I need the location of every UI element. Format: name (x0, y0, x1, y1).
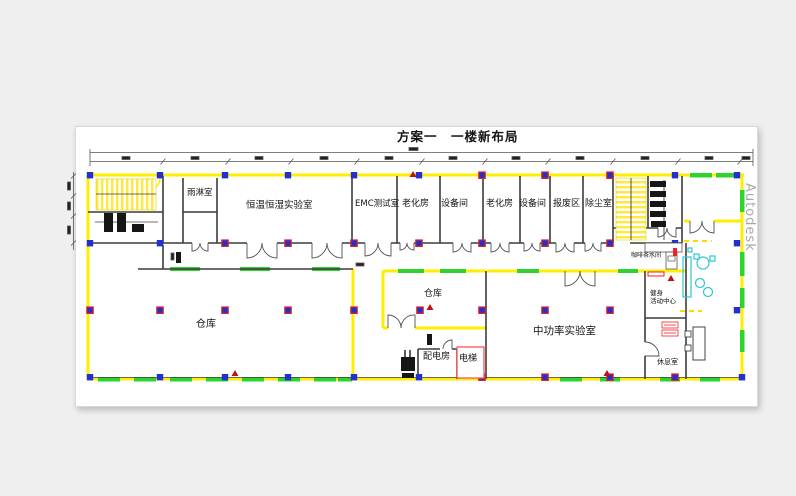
room-label-power-distribution-room: 配电房 (423, 353, 450, 363)
stair-right (616, 178, 646, 240)
room-label-aging-room-2: 老化房 (486, 200, 513, 210)
room-label-fitness-center: 健身 活动中心 (650, 289, 676, 305)
room-label-warehouse-small: 仓库 (424, 290, 442, 300)
room-label-scrap-area: 报废区 (553, 200, 580, 210)
room-label-equipment-room-1: 设备间 (441, 200, 468, 210)
stair-left (96, 179, 156, 210)
door-arcs (192, 221, 714, 356)
power-equipment (401, 350, 415, 378)
room-label-const-temp-humidity-lab: 恒温恒湿实验室 (246, 201, 313, 211)
room-label-rest-room: 休息室 (657, 359, 678, 367)
room-label-warehouse-large: 仓库 (196, 319, 216, 330)
room-label-aging-room-1: 老化房 (402, 200, 429, 210)
room-label-equipment-room-2: 设备间 (519, 200, 546, 210)
room-label-coffee-tea-room: 咖啡茶水间 (631, 253, 661, 260)
image-viewer-canvas: 方案一 一楼新布局 雨淋室 恒温恒湿实验室 EMC测试室 老化房 设备间 老化房… (0, 0, 796, 496)
drawing-title: 方案一 一楼新布局 (397, 130, 519, 144)
room-label-emc-test-room: EMC测试室 (355, 200, 399, 209)
room-label-rain-shower: 雨淋室 (187, 189, 213, 198)
room-label-elevator: 电梯 (459, 355, 477, 365)
room-label-dust-removal-room: 除尘室 (585, 200, 612, 210)
room-label-mid-power-lab: 中功率实验室 (533, 326, 596, 338)
autodesk-watermark: Autodesk (742, 183, 757, 252)
floorplan-linework (0, 0, 796, 496)
